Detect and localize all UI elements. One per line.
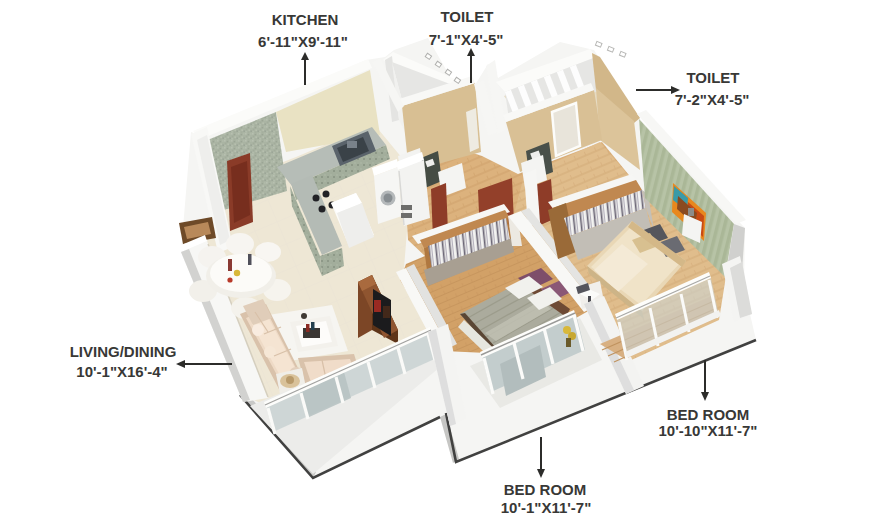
- svg-text:BED ROOM: BED ROOM: [667, 406, 750, 423]
- svg-text:TOILET: TOILET: [440, 8, 493, 25]
- svg-text:6'-11"X9'-11": 6'-11"X9'-11": [258, 33, 348, 50]
- svg-text:10'-1"X11'-7": 10'-1"X11'-7": [501, 499, 592, 516]
- svg-text:7'-1"X4'-5": 7'-1"X4'-5": [429, 31, 504, 48]
- svg-text:BED ROOM: BED ROOM: [504, 481, 587, 498]
- svg-text:LIVING/DINING: LIVING/DINING: [70, 343, 177, 360]
- svg-text:10'-10"X11'-7": 10'-10"X11'-7": [659, 422, 758, 439]
- svg-text:10'-1"X16'-4": 10'-1"X16'-4": [76, 363, 167, 380]
- svg-text:7'-2"X4'-5": 7'-2"X4'-5": [675, 91, 750, 108]
- svg-text:TOILET: TOILET: [686, 69, 739, 86]
- svg-text:KITCHEN: KITCHEN: [272, 11, 339, 28]
